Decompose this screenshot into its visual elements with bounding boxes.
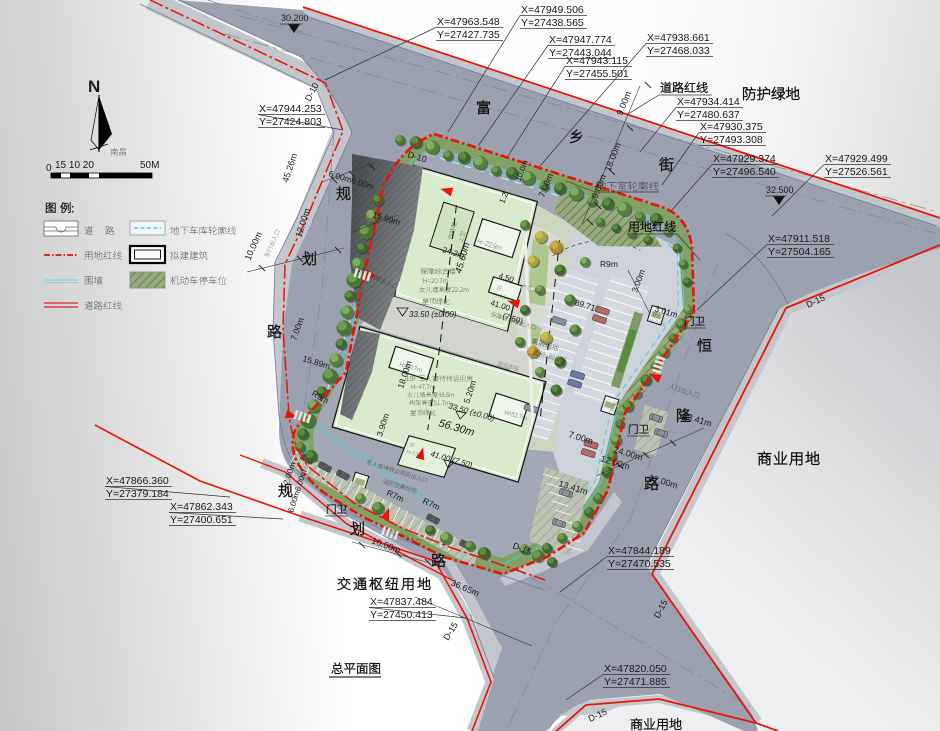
svg-text:Y=27379.184: Y=27379.184 (106, 488, 169, 500)
svg-text:Y=27471.885: Y=27471.885 (604, 676, 667, 688)
svg-text:Y=27480.637: Y=27480.637 (677, 109, 740, 121)
svg-text:X=47862.343: X=47862.343 (170, 501, 233, 513)
svg-text:15 10 20: 15 10 20 (55, 160, 94, 171)
svg-text:Y=27424.803: Y=27424.803 (259, 116, 322, 128)
svg-text:Y=27470.535: Y=27470.535 (608, 558, 671, 570)
svg-text:Y=27438.565: Y=27438.565 (521, 17, 584, 29)
svg-text:33.50 (±0.00): 33.50 (±0.00) (409, 310, 457, 319)
svg-text:N: N (88, 77, 100, 96)
svg-text:0: 0 (46, 163, 52, 174)
svg-text:X=47930.375: X=47930.375 (700, 121, 763, 133)
svg-text:X=47943.115: X=47943.115 (566, 55, 628, 67)
svg-text:Y=27427.735: Y=27427.735 (437, 29, 500, 41)
svg-text:Y=27468.033: Y=27468.033 (647, 45, 710, 57)
svg-text:X=47911.518: X=47911.518 (768, 233, 830, 245)
svg-text:32.500: 32.500 (766, 185, 794, 195)
svg-text:Y=27526.561: Y=27526.561 (825, 166, 888, 178)
svg-text:Y=27496.540: Y=27496.540 (713, 166, 776, 178)
svg-text:X=47929.499: X=47929.499 (825, 153, 888, 165)
svg-text:30.200: 30.200 (281, 13, 309, 23)
svg-text:X=47844.189: X=47844.189 (608, 545, 671, 557)
svg-text:X=47866.360: X=47866.360 (106, 475, 169, 487)
svg-text:X=47944.253: X=47944.253 (259, 103, 322, 115)
svg-text:X=47947.774: X=47947.774 (549, 34, 612, 46)
svg-text:X=47963.548: X=47963.548 (437, 16, 500, 28)
svg-text:X=47820.050: X=47820.050 (604, 663, 667, 675)
svg-text:X=47938.661: X=47938.661 (647, 32, 710, 44)
svg-text:X=47949.506: X=47949.506 (521, 4, 584, 16)
svg-text:50M: 50M (140, 160, 159, 171)
svg-text:X=47934.414: X=47934.414 (677, 96, 740, 108)
svg-text:Y=27504.165: Y=27504.165 (768, 246, 831, 258)
svg-text:Y=27493.308: Y=27493.308 (700, 134, 763, 146)
svg-text:X=47929.374: X=47929.374 (713, 153, 776, 165)
svg-text:R9m: R9m (600, 259, 618, 269)
svg-text:X=47837.484: X=47837.484 (370, 596, 433, 608)
